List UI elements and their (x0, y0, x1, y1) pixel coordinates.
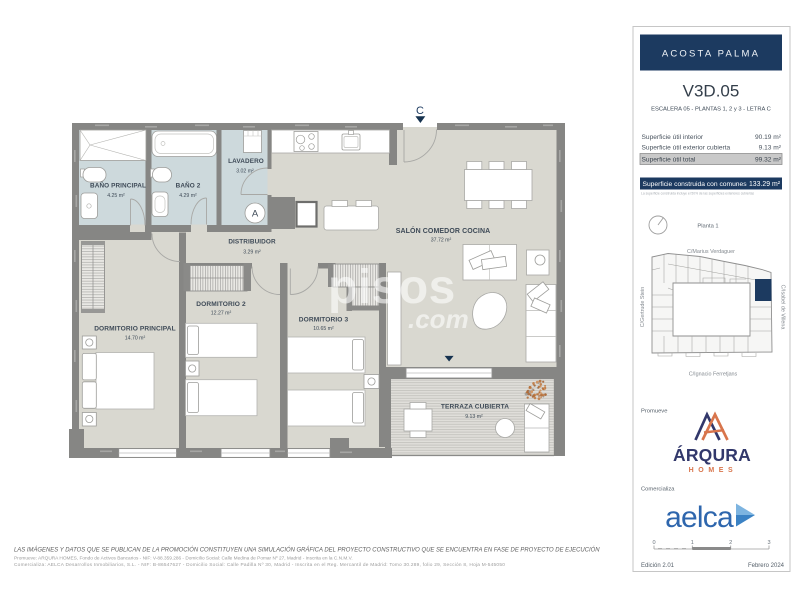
svg-text:1: 1 (691, 540, 694, 546)
svg-text:Comercializa: AELCA Desarrollo: Comercializa: AELCA Desarrollos Inmobili… (14, 562, 505, 568)
svg-text:Planta 1: Planta 1 (697, 224, 718, 230)
svg-text:HOMES: HOMES (689, 467, 738, 474)
svg-text:Superficie útil exterior cubie: Superficie útil exterior cubierta (642, 145, 731, 152)
svg-text:3: 3 (767, 540, 770, 546)
svg-text:LAVADERO: LAVADERO (228, 158, 264, 165)
svg-text:DISTRIBUIDOR: DISTRIBUIDOR (228, 239, 276, 246)
svg-text:14.70 m²: 14.70 m² (125, 336, 146, 342)
svg-text:BAÑO 2: BAÑO 2 (176, 181, 201, 190)
svg-text:ACOSTA PALMA: ACOSTA PALMA (662, 49, 760, 60)
svg-text:TERRAZA CUBIERTA: TERRAZA CUBIERTA (441, 404, 509, 411)
svg-text:Comercializa: Comercializa (641, 487, 675, 493)
svg-text:4.29 m²: 4.29 m² (179, 193, 197, 199)
svg-text:La superficie construida inclu: La superficie construida incluye el 50% … (641, 192, 754, 196)
svg-text:10.65 m²: 10.65 m² (313, 326, 334, 332)
svg-text:90.19 m²: 90.19 m² (755, 134, 782, 141)
svg-text:4.25 m²: 4.25 m² (107, 193, 125, 199)
svg-text:Superficie construida con comu: Superficie construida con comunes (643, 181, 748, 188)
svg-text:DORMITORIO 2: DORMITORIO 2 (196, 301, 246, 308)
svg-text:ÁRQURA: ÁRQURA (673, 444, 751, 465)
svg-text:DORMITORIO 3: DORMITORIO 3 (299, 317, 349, 324)
svg-text:Superficie útil interior: Superficie útil interior (642, 134, 704, 141)
svg-text:3.02 m²: 3.02 m² (236, 169, 254, 175)
svg-text:A: A (252, 209, 259, 220)
svg-text:C/Gertrude Stein: C/Gertrude Stein (640, 287, 646, 327)
svg-text:9.13 m²: 9.13 m² (465, 414, 483, 420)
svg-text:C/Marius Verdaguer: C/Marius Verdaguer (687, 249, 735, 255)
svg-text:Edición 2.01: Edición 2.01 (641, 563, 675, 569)
svg-text:aelca: aelca (665, 501, 734, 534)
svg-text:Promueve: ARQURA HOMES, Fondo: Promueve: ARQURA HOMES, Fondo de Activos… (14, 556, 353, 562)
svg-text:3.29 m²: 3.29 m² (243, 250, 261, 256)
svg-text:SALÓN COMEDOR COCINA: SALÓN COMEDOR COCINA (396, 226, 491, 235)
svg-text:133.29 m²: 133.29 m² (749, 181, 781, 188)
svg-text:.com: .com (408, 304, 469, 334)
svg-text:0: 0 (652, 540, 655, 546)
svg-text:12.27 m²: 12.27 m² (211, 311, 232, 317)
svg-text:V3D.05: V3D.05 (683, 82, 740, 101)
svg-text:37.72 m²: 37.72 m² (431, 238, 452, 244)
svg-text:DORMITORIO PRINCIPAL: DORMITORIO PRINCIPAL (94, 326, 176, 333)
svg-text:Febrero 2024: Febrero 2024 (748, 563, 785, 569)
svg-text:ESCALERA 05 - PLANTAS 1, 2 y 3: ESCALERA 05 - PLANTAS 1, 2 y 3 - LETRA C (651, 107, 771, 113)
svg-text:BAÑO PRINCIPAL: BAÑO PRINCIPAL (90, 181, 146, 190)
svg-text:LAS IMÁGENES Y DATOS QUE SE PU: LAS IMÁGENES Y DATOS QUE SE PUBLICAN DE … (14, 547, 600, 554)
svg-text:Promueve: Promueve (641, 409, 667, 415)
svg-text:C/Ignacio Ferretjans: C/Ignacio Ferretjans (689, 372, 738, 378)
svg-text:C: C (416, 105, 424, 117)
svg-text:9.13 m²: 9.13 m² (759, 145, 782, 152)
svg-text:C/Isabel de Villena: C/Isabel de Villena (780, 285, 786, 330)
svg-text:Superficie útil total: Superficie útil total (642, 157, 696, 164)
svg-text:99.32 m²: 99.32 m² (755, 157, 782, 164)
svg-text:2: 2 (729, 540, 732, 546)
